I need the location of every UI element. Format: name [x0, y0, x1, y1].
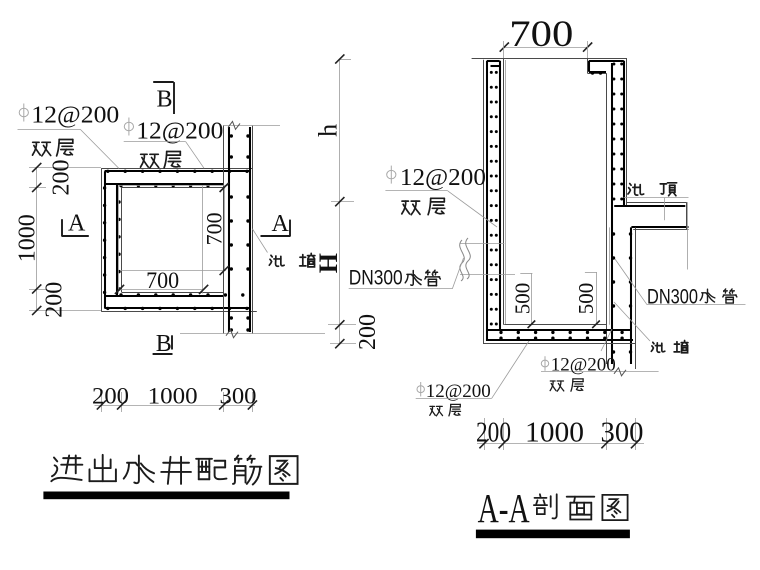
svg-text:1000: 1000 [525, 417, 584, 449]
svg-text:A-A: A-A [478, 485, 530, 531]
svg-text:h: h [314, 124, 343, 137]
svg-text:200: 200 [42, 282, 68, 318]
svg-text:500: 500 [510, 283, 534, 315]
svg-text:12@200: 12@200 [136, 119, 223, 145]
svg-text:700: 700 [509, 14, 573, 55]
svg-text:200: 200 [355, 314, 381, 350]
svg-text:12@200: 12@200 [31, 103, 119, 129]
svg-text:B: B [157, 86, 173, 112]
svg-text:12@200: 12@200 [400, 165, 486, 191]
svg-text:200: 200 [476, 417, 511, 449]
svg-text:500: 500 [574, 283, 598, 315]
svg-text:B: B [156, 331, 172, 357]
svg-text:A: A [272, 211, 290, 237]
svg-text:700: 700 [202, 212, 227, 245]
svg-text:12@200: 12@200 [551, 355, 616, 376]
svg-text:DN300: DN300 [349, 267, 403, 290]
svg-text:300: 300 [601, 417, 644, 449]
svg-text:200: 200 [92, 384, 129, 409]
svg-text:H: H [314, 253, 343, 273]
svg-text:1000: 1000 [15, 214, 41, 262]
svg-text:A: A [68, 211, 86, 237]
svg-text:DN300: DN300 [647, 285, 698, 309]
svg-text:1000: 1000 [148, 384, 198, 409]
svg-text:700: 700 [146, 268, 179, 293]
svg-text:300: 300 [220, 384, 257, 409]
svg-text:200: 200 [49, 160, 75, 196]
